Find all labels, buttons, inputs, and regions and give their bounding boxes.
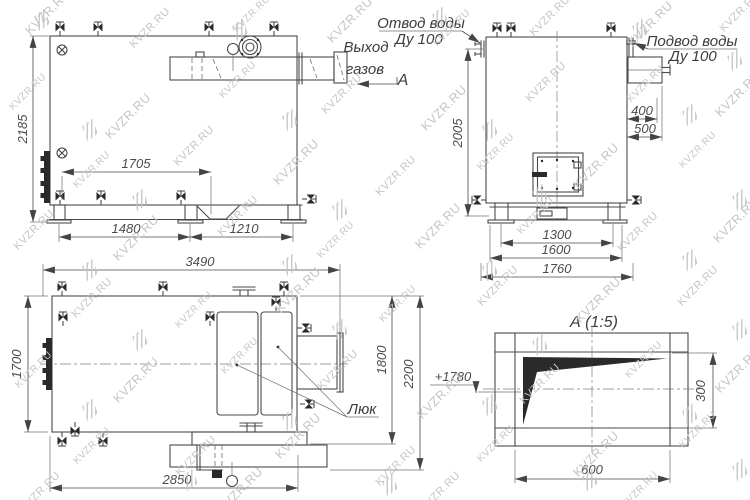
dim-plan-overall-width: 2200 — [401, 359, 416, 390]
dim-base-inner: 1300 — [543, 227, 573, 242]
dim-body-width: 1700 — [9, 349, 24, 379]
dim-base-outer: 1600 — [542, 242, 572, 257]
dim-support-front: 1480 — [112, 221, 142, 236]
front-view-drawing: Отвод воды Ду 100 Подвод воды Ду 100 200… — [377, 15, 737, 281]
dim-platform-length: 2850 — [162, 472, 193, 487]
plan-view-drawing: Люк 3490 1700 — [9, 254, 424, 492]
dim-width-to-platform: 1800 — [374, 345, 389, 375]
side-view-drawing: Выход газов А 2185 1705 1480 1210 — [15, 22, 408, 242]
level-mark: +1780 — [435, 369, 472, 384]
boiler-technical-drawing: Выход газов А 2185 1705 1480 1210 — [0, 0, 750, 500]
dim-flue: 1705 — [122, 156, 152, 171]
dim-support-rear: 1210 — [230, 221, 260, 236]
section-mark-letter: А — [397, 72, 409, 89]
detail-title: А (1:5) — [569, 314, 618, 331]
drawing-canvas: Выход газов А 2185 1705 1480 1210 — [0, 0, 750, 500]
hatch-label: Люк — [347, 401, 378, 418]
gas-flow-wedge — [523, 357, 667, 425]
water-outlet-label-2: Ду 100 — [393, 31, 443, 48]
gas-outlet-label-1: Выход — [343, 39, 388, 56]
dim-opening-width: 600 — [581, 462, 603, 477]
dim-inlet-depth: 500 — [634, 121, 656, 136]
dim-overall-length: 3490 — [186, 254, 216, 269]
gas-outlet-label-2: газов — [346, 61, 384, 78]
front-view-dimensions: 2005 400 500 1300 1600 1760 — [450, 49, 662, 281]
dim-height-to-outlet: 2005 — [450, 118, 465, 149]
side-view-dimensions: 2185 1705 1480 1210 — [15, 36, 293, 242]
detail-view-drawing: А (1:5) +1780 300 600 — [430, 314, 717, 483]
dim-opening-height: 300 — [693, 379, 708, 401]
detail-view-dimensions: 300 600 — [515, 353, 717, 483]
water-outlet-label-1: Отвод воды — [377, 15, 465, 32]
water-inlet-label-2: Ду 100 — [667, 48, 717, 65]
dim-overall-height: 2185 — [15, 114, 30, 145]
dim-overall-width: 1760 — [543, 261, 573, 276]
dim-inlet-offset: 400 — [631, 103, 653, 118]
